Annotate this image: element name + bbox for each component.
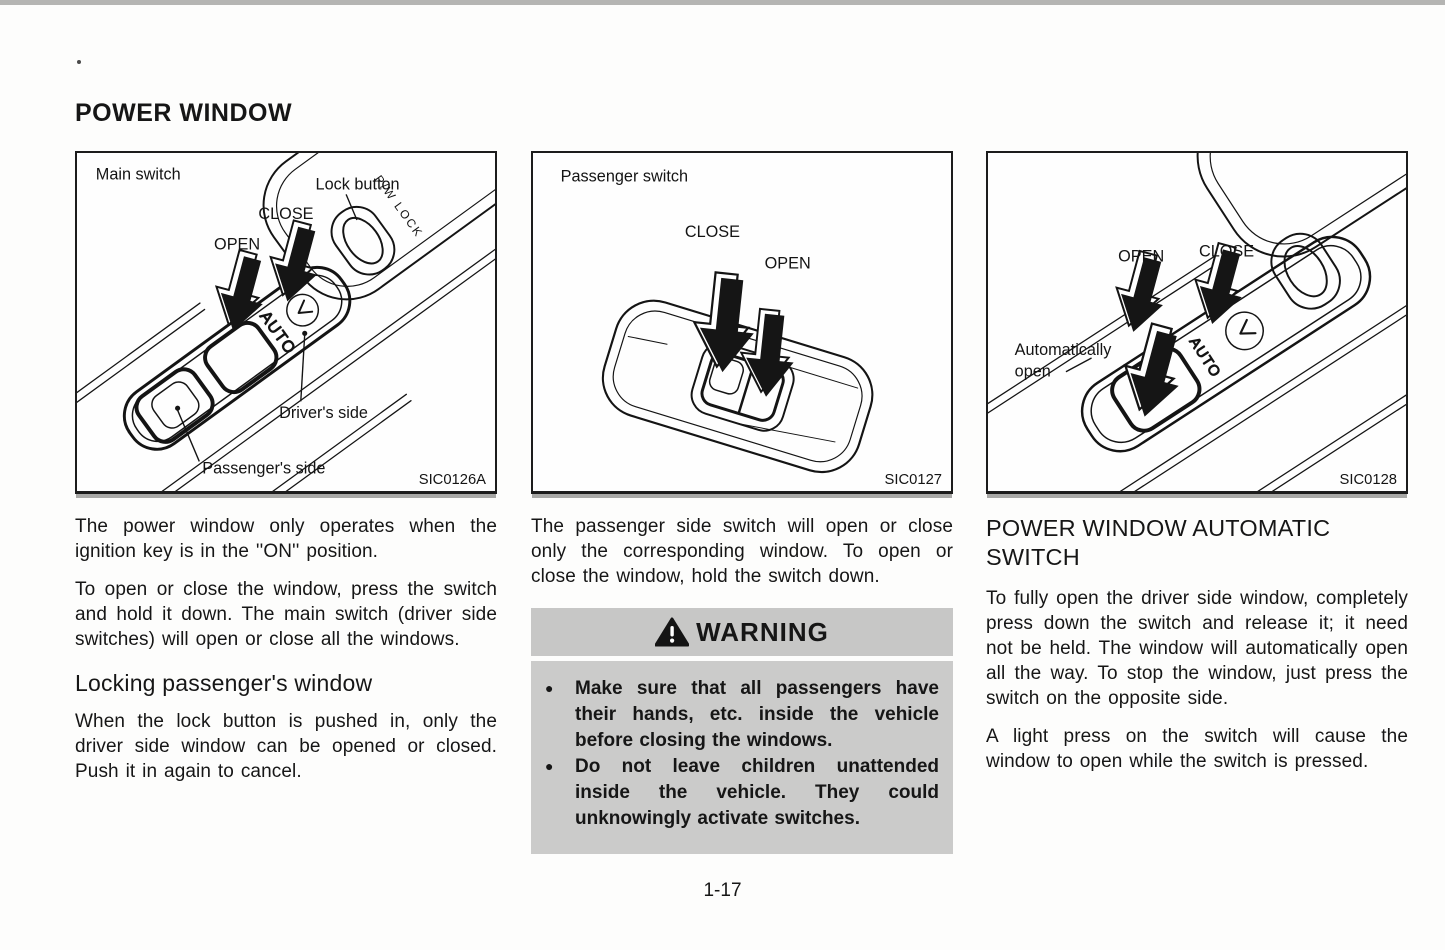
bullet-icon: ●: [545, 676, 575, 754]
label-lock-button: Lock button: [316, 175, 400, 193]
column-right: POWER WINDOW AUTOMATIC SWITCH To fully o…: [986, 514, 1408, 787]
page-title: POWER WINDOW: [75, 99, 292, 128]
warning-item-text: Make sure that all passengers have their…: [575, 676, 939, 754]
caption-passenger-switch: Passenger switch: [561, 168, 688, 186]
label-close: CLOSE: [685, 223, 740, 241]
label-close: CLOSE: [258, 205, 313, 223]
column-middle: The passenger side switch will open or c…: [531, 514, 953, 854]
door-seam-lines: [988, 153, 1406, 491]
figure-main-switch: AUTO P/W LOCK: [75, 151, 497, 494]
warning-header: WARNING: [531, 608, 953, 656]
figure-code: SIC0128: [1340, 472, 1397, 488]
door-seam-lines: [77, 153, 495, 491]
scan-dot-artifact: [77, 60, 81, 64]
automatic-switch-illustration: AUTO: [988, 153, 1406, 491]
door-panel: AUTO: [988, 153, 1406, 491]
passenger-switch-illustration: Passenger switch CLOSE OPEN SIC0127: [533, 153, 951, 491]
leader-dot-passenger: [175, 406, 180, 411]
figure-code: SIC0126A: [419, 472, 486, 488]
door-panel: AUTO P/W LOCK: [77, 153, 495, 491]
auto-position-button: [1219, 305, 1271, 357]
figure-passenger-switch: Passenger switch CLOSE OPEN SIC0127: [531, 151, 953, 494]
label-open-word: open: [1015, 363, 1051, 381]
paragraph: To fully open the driver side window, co…: [986, 586, 1408, 711]
paragraph: When the lock button is pushed in, only …: [75, 709, 497, 784]
section-heading: POWER WINDOW AUTOMATIC SWITCH: [986, 514, 1408, 572]
paragraph: To open or close the window, press the s…: [75, 577, 497, 652]
warning-body: ● Make sure that all passengers have the…: [531, 661, 953, 854]
paragraph: The power window only operates when the …: [75, 514, 497, 564]
warning-item: ● Make sure that all passengers have the…: [545, 676, 939, 754]
label-open: OPEN: [214, 236, 260, 254]
figure-automatic-switch: AUTO: [986, 151, 1408, 494]
warning-title: WARNING: [696, 617, 829, 648]
subsection-heading: Locking passenger's window: [75, 670, 497, 697]
warning-box: WARNING ● Make sure that all passengers …: [531, 608, 953, 854]
label-open: OPEN: [1118, 247, 1164, 265]
label-automatically: Automatically: [1015, 341, 1113, 359]
paragraph: A light press on the switch will cause t…: [986, 724, 1408, 774]
label-close: CLOSE: [1199, 242, 1254, 260]
paragraph: The passenger side switch will open or c…: [531, 514, 953, 589]
warning-item-text: Do not leave children unattended inside …: [575, 754, 939, 832]
figure-code: SIC0127: [885, 472, 942, 488]
label-drivers-side: Driver's side: [279, 404, 368, 422]
label-passengers-side: Passenger's side: [202, 459, 325, 477]
caption-main-switch: Main switch: [96, 166, 181, 184]
warning-triangle-icon: [655, 617, 689, 647]
scan-edge-artifact: [0, 0, 1445, 5]
bullet-icon: ●: [545, 754, 575, 832]
main-switch-illustration: AUTO P/W LOCK: [77, 153, 495, 491]
warning-item: ● Do not leave children unattended insid…: [545, 754, 939, 832]
manual-page: POWER WINDOW: [0, 0, 1445, 950]
column-left: The power window only operates when the …: [75, 514, 497, 797]
page-number: 1-17: [0, 880, 1445, 902]
leader-dot-driver: [302, 331, 307, 336]
label-open: OPEN: [765, 254, 811, 272]
